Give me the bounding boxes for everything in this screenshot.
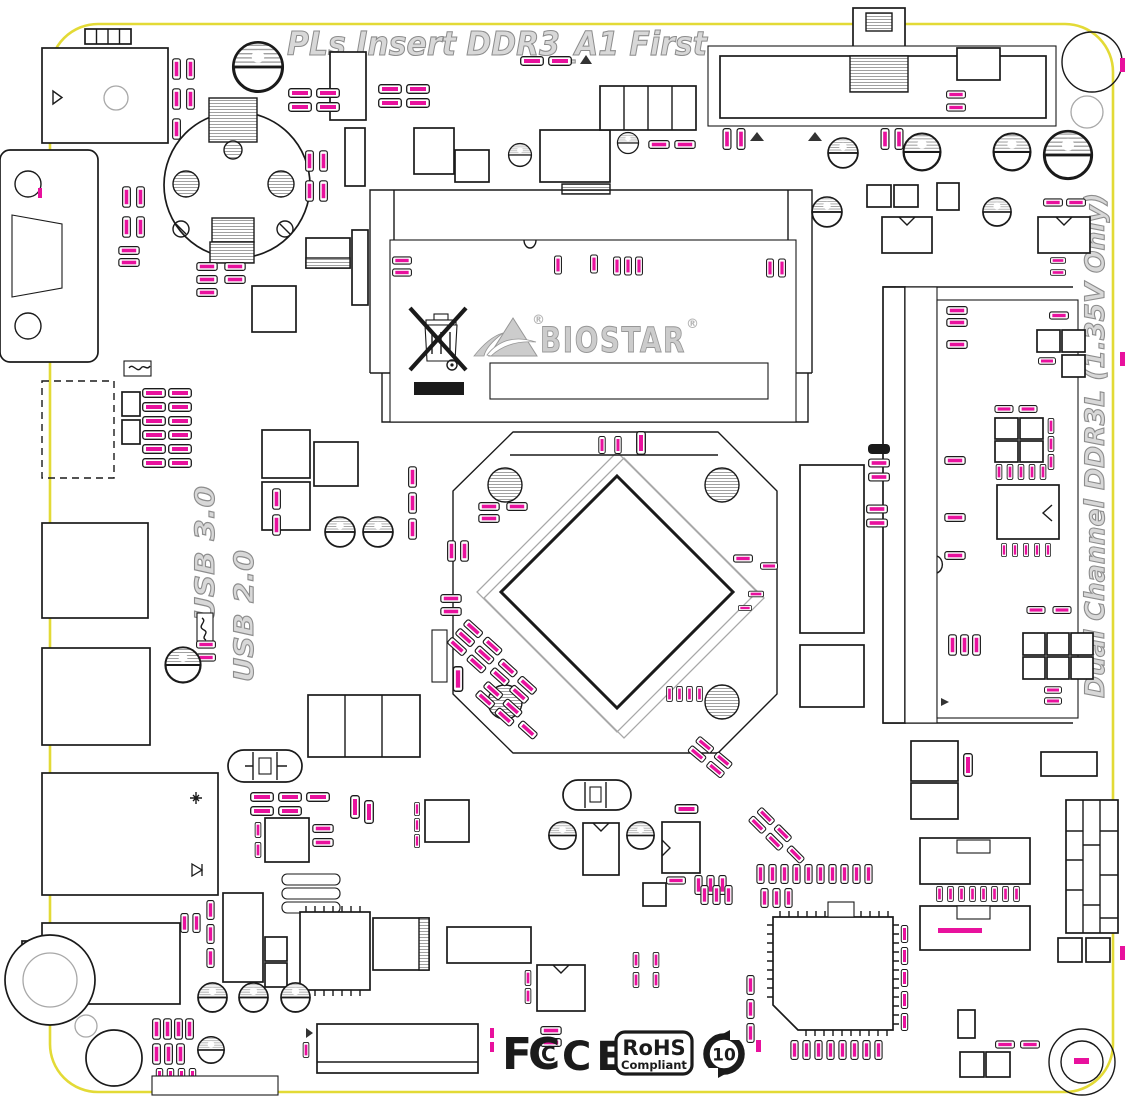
ps2-connector bbox=[42, 48, 168, 143]
vga-connector bbox=[0, 150, 98, 362]
svg-text:Compliant: Compliant bbox=[621, 1058, 687, 1072]
sodimm-label-box bbox=[490, 363, 768, 399]
svg-text:C: C bbox=[541, 1042, 556, 1066]
front-panel-header bbox=[303, 1024, 494, 1073]
registered-mark-left: ® bbox=[532, 313, 545, 328]
svg-text:10: 10 bbox=[712, 1046, 736, 1066]
chip-with-pins bbox=[300, 906, 370, 996]
super-io-chip bbox=[767, 902, 899, 1036]
rohs-badge: RoHS Compliant bbox=[616, 1032, 692, 1074]
fcc-logo-icon: F C C bbox=[502, 1029, 560, 1080]
label-usb3: USB 3.0 bbox=[190, 486, 221, 622]
label-usb2: USB 2.0 bbox=[229, 550, 260, 682]
usb3-port-block bbox=[42, 523, 148, 618]
audio-jack-round bbox=[5, 935, 95, 1025]
registered-mark-right: ® bbox=[686, 317, 699, 332]
usb2-port-block bbox=[42, 648, 150, 745]
crystal-oscillator-2 bbox=[563, 780, 631, 810]
brand-name: BIOSTAR bbox=[540, 321, 686, 361]
motherboard-layout-diagram: PLs Insert DDR3_A1 First Dual Channel DD… bbox=[0, 0, 1134, 1108]
io-shield-tab bbox=[85, 29, 131, 44]
lan-connector bbox=[42, 773, 218, 895]
crystal-oscillator-1 bbox=[228, 750, 302, 782]
svg-text:RoHS: RoHS bbox=[622, 1036, 685, 1060]
note-dual-channel-ddr3l: Dual Channel DDR3L (1.35V Only) bbox=[1080, 193, 1111, 698]
